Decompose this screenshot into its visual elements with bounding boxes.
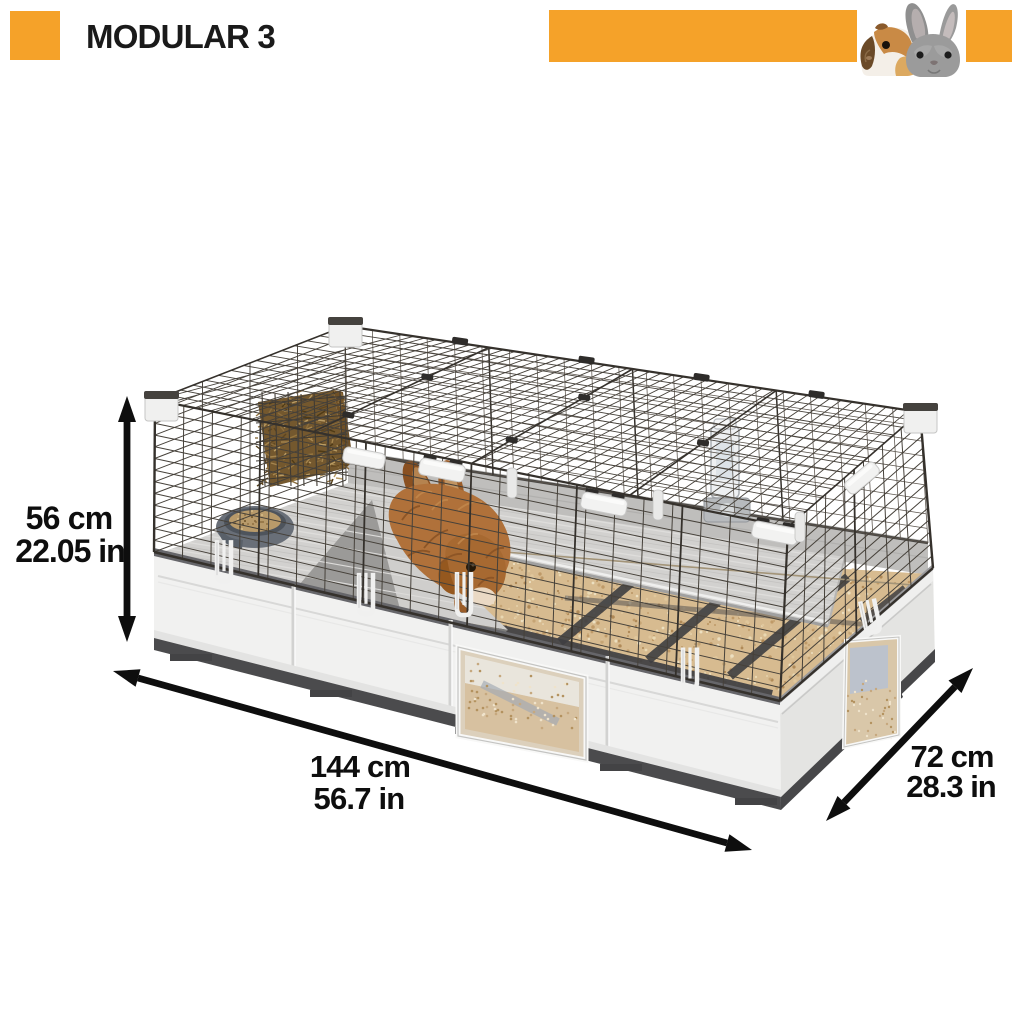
svg-text:22.05 in: 22.05 in <box>15 533 124 569</box>
svg-text:144 cm: 144 cm <box>310 749 410 784</box>
svg-text:56.7 in: 56.7 in <box>314 781 405 816</box>
svg-text:28.3 in: 28.3 in <box>906 769 996 804</box>
svg-text:56 cm: 56 cm <box>26 500 113 536</box>
svg-text:MODULAR 3: MODULAR 3 <box>86 18 275 55</box>
